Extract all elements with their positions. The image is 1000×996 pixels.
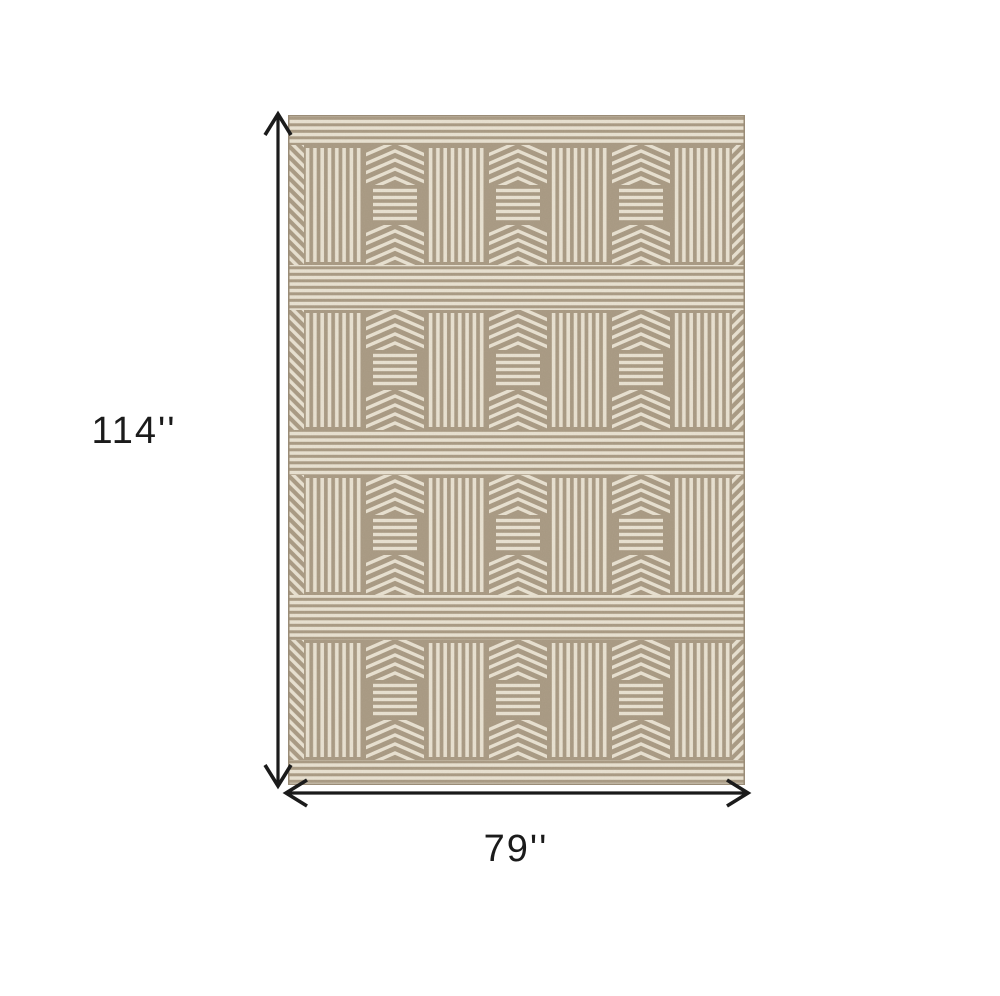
height-dimension-arrow — [260, 107, 296, 793]
width-dimension-arrow — [278, 777, 756, 811]
rug-pattern-svg — [288, 115, 745, 785]
width-dimension-label: 79'' — [441, 827, 591, 873]
product-dimension-diagram: 114'' 79'' — [0, 0, 1000, 996]
rug-image — [288, 115, 745, 785]
height-dimension-label: 114'' — [58, 409, 210, 455]
